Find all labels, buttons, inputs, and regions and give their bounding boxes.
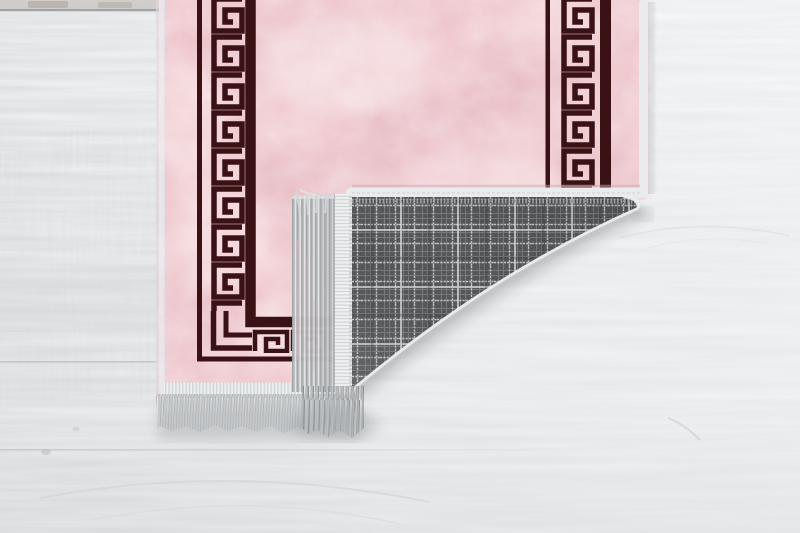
plank-end-patch xyxy=(28,1,68,8)
border-thin-line xyxy=(546,0,551,196)
vertical-fringe xyxy=(292,190,352,392)
meander-strip-right xyxy=(559,0,595,196)
meander-strip-left xyxy=(209,0,245,311)
plank-seam xyxy=(0,361,163,363)
rug-scene xyxy=(0,0,800,533)
border-thick-line xyxy=(600,0,611,196)
rug-edge-shadow xyxy=(648,2,657,194)
wood-knot xyxy=(41,449,51,455)
strand-gap xyxy=(297,240,299,360)
plank-seam xyxy=(0,9,166,11)
rug-right-binding xyxy=(639,0,648,192)
plank-tone-band xyxy=(0,268,162,332)
strand-gap xyxy=(305,260,307,360)
wood-knot xyxy=(73,427,80,431)
plank-seam xyxy=(0,449,545,451)
strand-shade xyxy=(322,195,336,392)
strand-gap xyxy=(313,300,315,370)
plank-end-patch xyxy=(98,2,132,8)
plank-end xyxy=(0,0,166,9)
flap-top-binding xyxy=(346,188,647,199)
product-photo-rug xyxy=(0,0,800,533)
